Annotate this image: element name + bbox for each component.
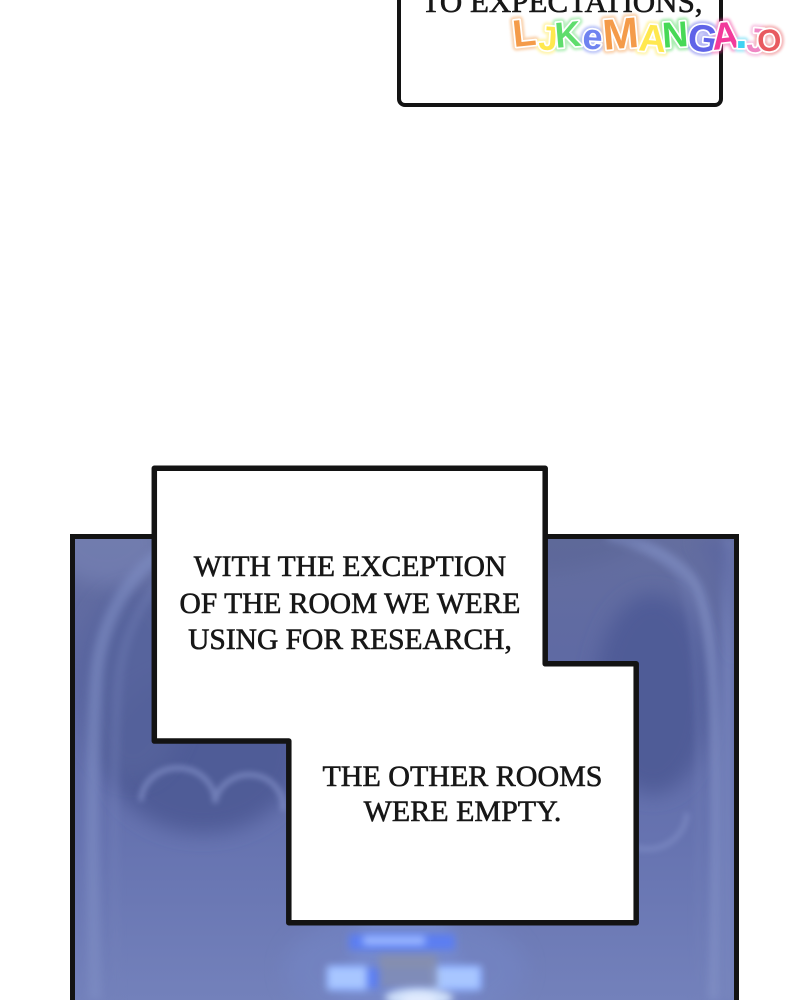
svg-text:O: O <box>756 22 783 59</box>
svg-text:L: L <box>511 12 538 56</box>
svg-text:e: e <box>582 16 604 58</box>
svg-text:N: N <box>661 13 690 56</box>
svg-text:K: K <box>553 13 582 56</box>
svg-text:M: M <box>601 9 641 60</box>
